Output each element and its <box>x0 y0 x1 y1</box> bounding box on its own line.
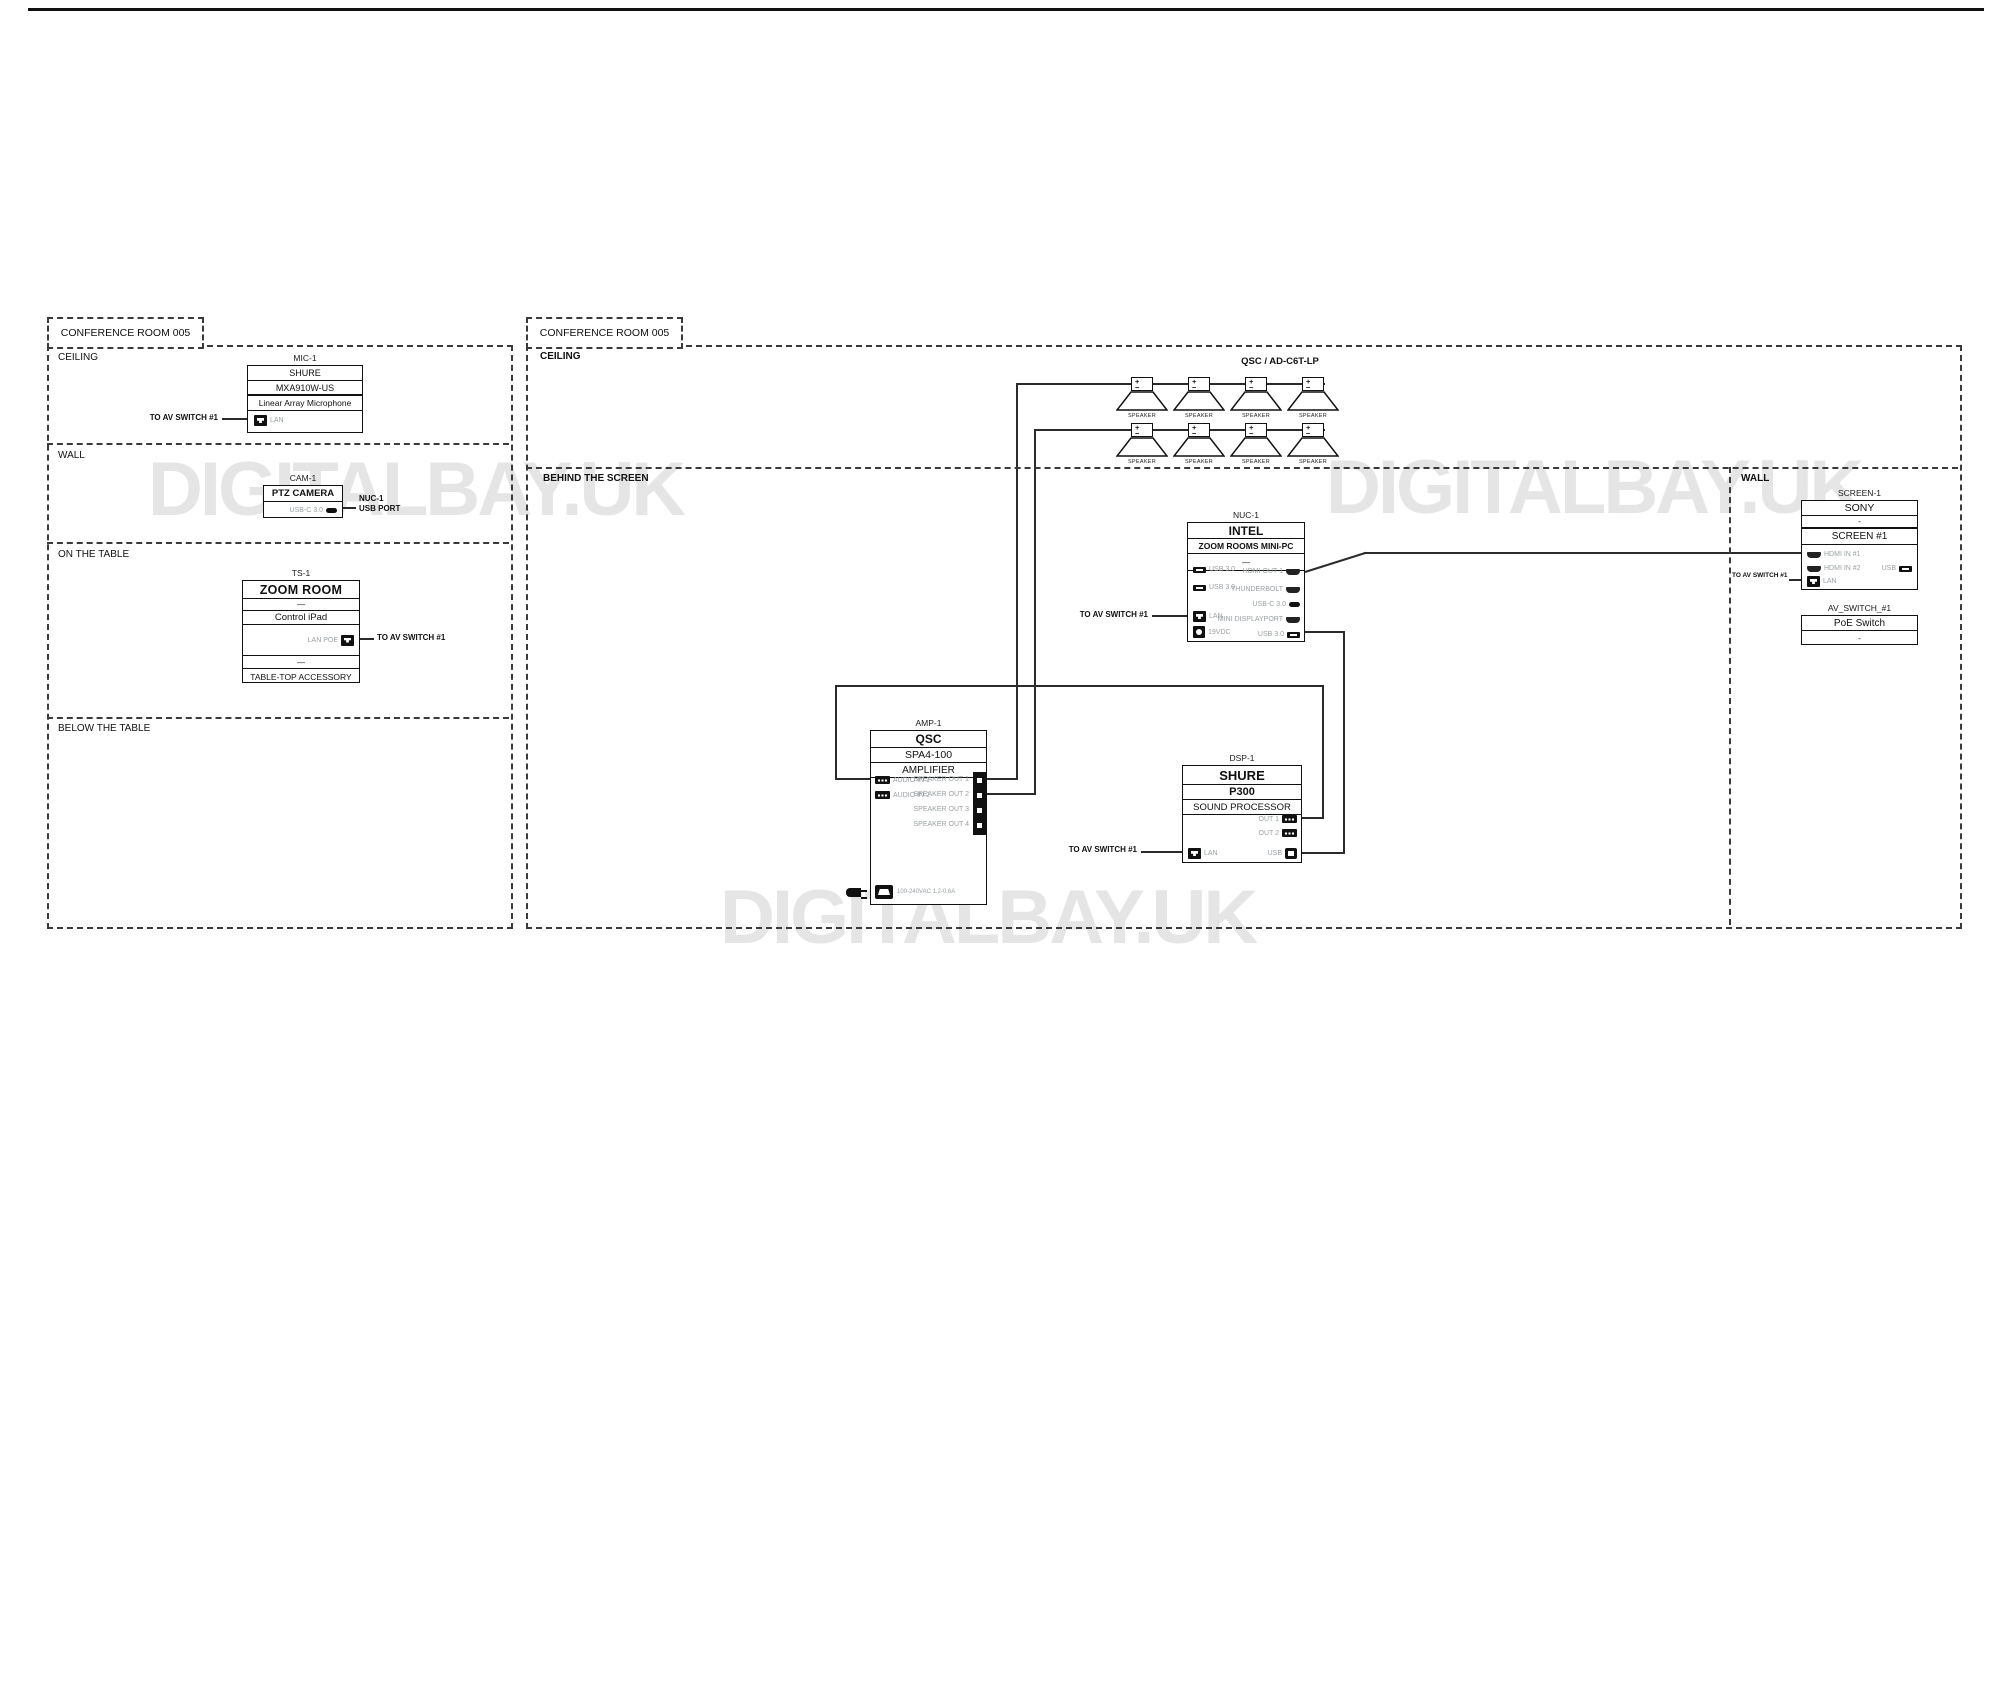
panel1-title-box: CONFERENCE ROOM 005 <box>47 317 204 349</box>
touch-panel-dash2: — <box>243 656 359 669</box>
speaker-label: SPEAKER <box>1226 459 1286 465</box>
hdmi-icon <box>1807 566 1821 572</box>
speaker-symbol <box>1116 391 1168 412</box>
nuc-model: ZOOM ROOMS MINI-PC <box>1188 539 1304 554</box>
section-label-on-the-table: ON THE TABLE <box>58 549 129 560</box>
amp-power-rating: 100-240VAC 1.2-0.6A <box>897 889 955 895</box>
nuc-port-power: 19VDC <box>1208 629 1231 636</box>
speaker-label: SPEAKER <box>1283 459 1343 465</box>
camera-conn-label-1: NUC-1 <box>359 494 383 503</box>
screen-port-hdmi2: HDMI IN #2 <box>1824 565 1861 572</box>
speaker-label: SPEAKER <box>1226 413 1286 419</box>
dsp-port-out2: OUT 2 <box>1259 830 1280 837</box>
hdmi-icon <box>1286 569 1300 575</box>
camera-device-box: CAM-1 PTZ CAMERA USB-C 3.0 <box>263 485 343 518</box>
terminal-minus: − <box>1192 431 1209 437</box>
dsp-id: DSP-1 <box>1183 753 1301 763</box>
usb-a-icon <box>1193 585 1206 591</box>
touch-panel-device-box: TS-1 ZOOM ROOM — Control iPad LAN POE — … <box>242 580 360 683</box>
speaker-terminal: +− <box>1245 377 1267 391</box>
ac-inlet-icon <box>875 885 893 899</box>
camera-id: CAM-1 <box>264 473 342 483</box>
poe-switch-id: AV_SWITCH_#1 <box>1802 603 1917 613</box>
poe-switch-name: PoE Switch <box>1802 616 1917 631</box>
speaker-terminal: +− <box>1131 377 1153 391</box>
lan-icon <box>254 415 267 426</box>
touch-panel-port-lanpoe: LAN POE <box>308 637 338 644</box>
lan-icon <box>1193 611 1206 622</box>
lan-icon <box>341 635 354 646</box>
speaker-terminal: +− <box>1188 377 1210 391</box>
speaker-array-title: QSC / AD-C6T-LP <box>1195 356 1365 367</box>
section-label-wall-1: WALL <box>58 450 85 461</box>
panel1-divider-wall <box>47 443 509 445</box>
dsp-port-out1: OUT 1 <box>1259 816 1280 823</box>
nuc-conn-label: TO AV SWITCH #1 <box>1048 610 1148 619</box>
terminal-minus: − <box>1192 385 1209 391</box>
mic-id: MIC-1 <box>248 353 362 363</box>
section-label-ceiling-2: CEILING <box>540 351 581 362</box>
terminal-minus: − <box>1249 431 1266 437</box>
amp-port-spk-out2: SPEAKER OUT 2 <box>913 791 969 798</box>
speaker-terminal: +− <box>1131 423 1153 437</box>
mic-conn-label: TO AV SWITCH #1 <box>128 413 218 422</box>
speaker-terminal: +− <box>1188 423 1210 437</box>
speaker-terminal: +− <box>1245 423 1267 437</box>
thunderbolt-icon <box>1286 587 1300 593</box>
mic-port-lan: LAN <box>270 417 284 424</box>
power-icon <box>1193 626 1205 638</box>
camera-conn-label-2: USB PORT <box>359 504 400 513</box>
speaker-label: SPEAKER <box>1112 459 1172 465</box>
screen-dash: - <box>1802 516 1917 529</box>
screen-device-box: SCREEN-1 SONY - SCREEN #1 HDMI IN #1 HDM… <box>1801 500 1918 590</box>
amp-port-spk-out1: SPEAKER OUT 1 <box>913 776 969 783</box>
speaker-symbol <box>1173 391 1225 412</box>
section-label-behind-screen: BEHIND THE SCREEN <box>543 473 649 484</box>
amp-model: SPA4-100 <box>871 748 986 763</box>
panel2-title-box: CONFERENCE ROOM 005 <box>526 317 683 349</box>
amp-id: AMP-1 <box>871 718 986 728</box>
touch-panel-conn-label: TO AV SWITCH #1 <box>377 633 445 642</box>
speaker-symbol <box>1287 391 1339 412</box>
mini-displayport-icon <box>1286 617 1300 623</box>
screen-brand: SONY <box>1802 501 1917 516</box>
mic-desc: Linear Array Microphone <box>248 396 362 411</box>
touch-panel-dash: — <box>243 599 359 611</box>
av-schematic-canvas: DIGITALBAY.UK DIGITALBAY.UK DIGITALBAY.U… <box>0 0 2011 1689</box>
nuc-id: NUC-1 <box>1188 510 1304 520</box>
section-label-ceiling-1: CEILING <box>58 352 98 363</box>
speaker-label: SPEAKER <box>1283 413 1343 419</box>
panel1-divider-below <box>47 717 509 719</box>
screen-name: SCREEN #1 <box>1802 529 1917 545</box>
terminal-minus: − <box>1306 431 1323 437</box>
speaker-out-connector-strip <box>973 772 986 835</box>
nuc-port-usb3: USB 3.0 <box>1258 631 1284 638</box>
phoenix-icon <box>875 791 890 799</box>
ac-plug-icon <box>846 888 861 897</box>
dsp-brand: SHURE <box>1183 766 1301 785</box>
camera-name: PTZ CAMERA <box>264 486 342 502</box>
screen-port-lan: LAN <box>1823 578 1837 585</box>
mic-device-box: MIC-1 SHURE MXA910W-US Linear Array Micr… <box>247 365 363 433</box>
speaker-terminal: +− <box>1302 423 1324 437</box>
panel2-divider-ceiling <box>526 467 1958 469</box>
hdmi-icon <box>1807 552 1821 558</box>
speaker-label: SPEAKER <box>1169 413 1229 419</box>
camera-port-usbc: USB-C 3.0 <box>290 507 323 514</box>
mic-model: MXA910W-US <box>248 381 362 396</box>
phoenix-icon <box>875 776 890 784</box>
dsp-conn-label: TO AV SWITCH #1 <box>1037 845 1137 854</box>
mic-brand: SHURE <box>248 366 362 381</box>
screen-port-hdmi1: HDMI IN #1 <box>1824 551 1861 558</box>
usb-c-icon <box>1289 602 1300 607</box>
screen-port-usb: USB <box>1882 565 1896 572</box>
terminal-minus: − <box>1135 385 1152 391</box>
screen-id: SCREEN-1 <box>1802 488 1917 498</box>
usb-a-icon <box>1899 566 1912 572</box>
amp-port-spk-out4: SPEAKER OUT 4 <box>913 821 969 828</box>
nuc-device-box: NUC-1 INTEL ZOOM ROOMS MINI-PC — USB 3.0… <box>1187 522 1305 642</box>
speaker-symbol <box>1230 437 1282 458</box>
terminal-minus: − <box>1135 431 1152 437</box>
speaker-symbol <box>1173 437 1225 458</box>
touch-panel-desc: Control iPad <box>243 611 359 625</box>
lan-icon <box>1807 576 1820 587</box>
panel1-divider-table <box>47 542 509 544</box>
phoenix-icon <box>1282 829 1297 837</box>
phoenix-icon <box>1282 815 1297 823</box>
speaker-symbol <box>1230 391 1282 412</box>
touch-panel-brand: ZOOM ROOM <box>243 581 359 599</box>
touch-panel-id: TS-1 <box>243 568 359 578</box>
terminal-minus: − <box>1249 385 1266 391</box>
speaker-label: SPEAKER <box>1169 459 1229 465</box>
speaker-terminal: +− <box>1302 377 1324 391</box>
usb-c-icon <box>326 508 337 513</box>
panel2-divider-wall <box>1729 467 1731 925</box>
section-label-below-the-table: BELOW THE TABLE <box>58 723 150 734</box>
usb-a-icon <box>1287 632 1300 638</box>
amp-brand: QSC <box>871 731 986 748</box>
nuc-port-minidp: MINI DISPLAYPORT <box>1218 616 1283 623</box>
usb-a-icon <box>1193 567 1206 573</box>
amp-device-box: AMP-1 QSC SPA4-100 AMPLIFIER AUDIO IN 1 … <box>870 730 987 905</box>
lan-icon <box>1188 848 1201 859</box>
dsp-model: P300 <box>1183 785 1301 800</box>
touch-panel-footer: TABLE-TOP ACCESSORY <box>243 669 359 684</box>
dsp-desc: SOUND PROCESSOR <box>1183 800 1301 815</box>
amp-port-spk-out3: SPEAKER OUT 3 <box>913 806 969 813</box>
speaker-symbol <box>1116 437 1168 458</box>
speaker-label: SPEAKER <box>1112 413 1172 419</box>
nuc-brand: INTEL <box>1188 523 1304 539</box>
poe-switch-device-box: AV_SWITCH_#1 PoE Switch - <box>1801 615 1918 645</box>
dsp-device-box: DSP-1 SHURE P300 SOUND PROCESSOR OUT 1 O… <box>1182 765 1302 863</box>
top-rule <box>28 8 1984 11</box>
screen-conn-label: TO AV SWITCH #1 <box>1732 572 1787 579</box>
nuc-port-usbc: USB-C 3.0 <box>1253 601 1286 608</box>
speaker-symbol <box>1287 437 1339 458</box>
section-label-wall-2: WALL <box>1741 473 1769 484</box>
dsp-port-lan: LAN <box>1204 850 1218 857</box>
nuc-port-thunderbolt: THUNDERBOLT <box>1231 586 1283 593</box>
nuc-port-hdmi-out: HDMI OUT 1 <box>1243 568 1283 575</box>
poe-switch-dash: - <box>1802 631 1917 645</box>
terminal-minus: − <box>1306 385 1323 391</box>
usb-b-icon <box>1285 848 1297 859</box>
dsp-port-usb: USB <box>1268 850 1282 857</box>
nuc-port-usb1: USB 3.0 <box>1209 566 1235 573</box>
